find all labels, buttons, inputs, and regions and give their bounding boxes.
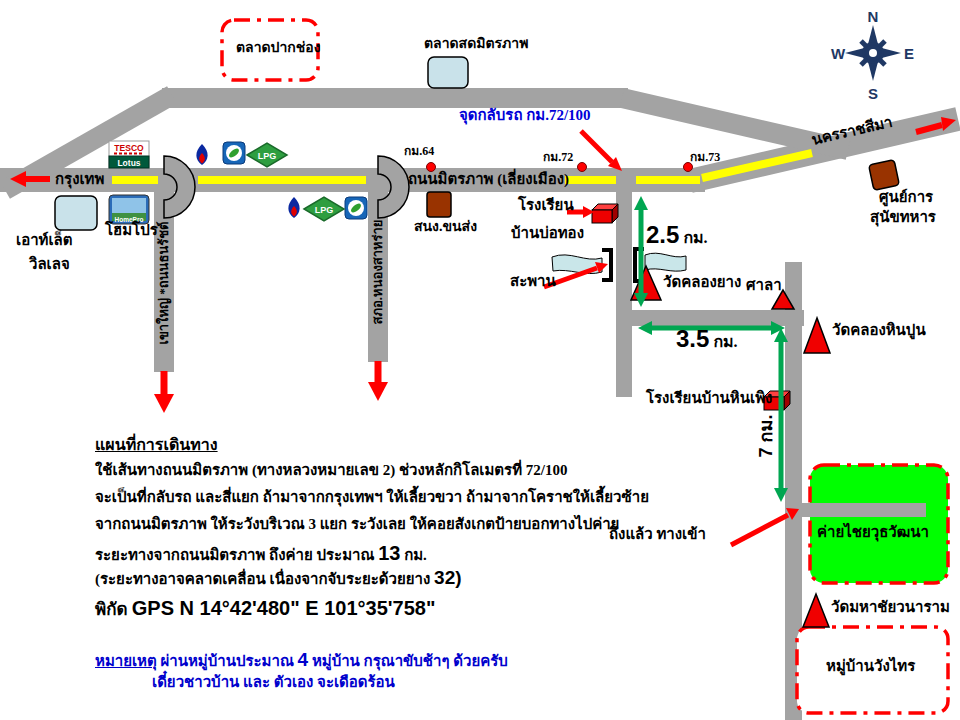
lotus-logo-text: Lotus	[117, 158, 140, 168]
mahachai-temple-label: วัดมหาชัยวนาราม	[831, 600, 950, 616]
arrived-entrance-label: ถึงแล้ว ทางเข้า	[609, 527, 706, 543]
dog-center-label-1: ศูนย์การ	[879, 190, 933, 206]
dog-center-building	[869, 160, 900, 191]
directions-line-3: จากถนนมิตรภาพ ให้ระวังบริเวณ 3 แยก ระวัง…	[95, 517, 619, 533]
nong-sarai-road-label: สภอ.หนองสาหร่าย	[371, 220, 385, 325]
gps-thai-label: พิกัด	[95, 600, 132, 619]
distance-2-5-unit: กม.	[683, 229, 707, 246]
directions-line-4: ระยะทางจากถนนมิตรภาพ ถึงค่าย ประมาณ 13 ก…	[95, 543, 427, 564]
disclaimer-value: 32)	[434, 567, 461, 588]
khlong-yang-temple-label: วัดคลองยาง	[663, 275, 741, 291]
distance-7km-label: 7 กม.	[757, 415, 776, 458]
outlet-village-building	[55, 196, 97, 230]
km73-label: กม.73	[690, 151, 720, 164]
note-village-count: 4	[298, 649, 309, 670]
pakchong-market-label: ตลาดปากช่อง	[236, 41, 321, 56]
transport-office-label: สนง.ขนส่ง	[414, 220, 477, 235]
directions-line-5: (ระยะทางอาจคลาดเคลื่อน เนื่องจากจับระยะด…	[95, 568, 462, 588]
nong-sarai-south-arrow	[368, 361, 388, 401]
thanarat-south-arrow	[154, 371, 174, 413]
camp-entrance-road	[800, 503, 926, 517]
km72-marker-dot	[578, 163, 587, 172]
distance-2-5km-label: 2.5 กม.	[646, 222, 708, 247]
note-label: หมายเหตุ	[95, 653, 157, 669]
bothong-school-label-1: โรงเรียน	[518, 198, 574, 214]
camp-access-road	[616, 192, 632, 397]
thanarat-road-label: เขาใหญ่ *ถนนธนรัชต์	[157, 221, 171, 344]
distance-total-text: ระยะทางจากถนนมิตรภาพ ถึงค่าย ประมาณ	[95, 547, 378, 563]
compass-east-label: E	[904, 45, 914, 62]
lpg-diamond-icon: LPG	[247, 143, 287, 167]
directions-heading: แผนที่การเดินทาง	[95, 437, 218, 454]
route-map: TESCO Lotus HomePro LPG LPG	[0, 0, 960, 720]
distance-2-5-value: 2.5	[646, 221, 679, 248]
distance-3-5km-label: 3.5 กม.	[676, 326, 738, 351]
svg-text:LPG: LPG	[315, 205, 334, 215]
temple-marker-khlong-hinpun	[804, 318, 830, 353]
bypass-road	[162, 88, 628, 108]
mitraphap-market-building	[428, 57, 468, 88]
compass-west-label: W	[831, 45, 846, 62]
compass-rose-icon: N S W E	[831, 8, 914, 102]
lpg-diamond-icon: LPG	[304, 197, 344, 221]
distance-3-5-value: 3.5	[676, 325, 709, 352]
compass-south-label: S	[868, 85, 878, 102]
gps-value: GPS N 14°42'480" E 101°35'758"	[132, 597, 436, 619]
distance-3-5-unit: กม.	[713, 333, 737, 350]
km72-label: กม.72	[543, 151, 573, 164]
tesco-logo-text: TESCO	[114, 143, 144, 153]
uturn-point-label: จุดกลับรถ กม.72/100	[459, 108, 591, 124]
caution-note-line-1: หมายเหตุ ผ่านหมู่บ้านประมาณ 4 หมู่บ้าน ก…	[95, 650, 508, 670]
homepro-sign: HomePro	[109, 195, 149, 224]
tesco-lotus-sign: TESCO Lotus	[109, 141, 149, 168]
compass-north-label: N	[868, 8, 879, 25]
camp-label: ค่ายไชยวุธวัฒนา	[817, 525, 929, 541]
highway-name-label: ถนนมิตรภาพ (เลี่ยงเมือง)	[408, 172, 569, 188]
note-text-a: ผ่านหมู่บ้านประมาณ	[157, 653, 298, 669]
dog-center-label-2: สุนัขทหาร	[870, 210, 936, 226]
distance-total-unit: กม.	[400, 547, 426, 563]
bridge-label: สะพาน	[510, 274, 556, 290]
gps-coordinates: พิกัด GPS N 14°42'480" E 101°35'758"	[95, 598, 435, 619]
hinphoeng-school-label: โรงเรียนบ้านหินเพิง	[646, 391, 772, 407]
uturn-pointer-arrow	[581, 131, 622, 171]
mitraphap-market-label: ตลาดสดมิตรภาพ	[424, 37, 528, 52]
outlet-village-label-2: วิลเลจ	[29, 257, 70, 273]
distance-total-value: 13	[378, 542, 400, 564]
wangsai-village-label: หมู่บ้านวังไทร	[826, 659, 915, 675]
svg-text:LPG: LPG	[258, 151, 277, 161]
caution-note-line-2: เดี๋ยวชาวบ้าน และ ตัวเอง จะเดือดร้อน	[152, 675, 395, 691]
directions-line-1: ใช้เส้นทางถนนมิตรภาพ (ทางหลวงหมายเลข 2) …	[95, 463, 567, 479]
directions-line-2: จะเป็นที่กลับรถ และสี่แยก ถ้ามาจากกรุงเท…	[95, 490, 649, 506]
sala-label: ศาลา	[746, 278, 782, 294]
temple-marker-mahachai	[803, 594, 829, 627]
khlong-hinpun-temple-label: วัดคลองหินปูน	[832, 323, 926, 339]
bangkok-label: กรุงเทพ	[55, 172, 104, 188]
disclaimer-text: (ระยะทางอาจคลาดเคลื่อน เนื่องจากจับระยะด…	[95, 571, 434, 587]
note-text-b: หมู่บ้าน กรุณาขับช้าๆ ด้วยครับ	[308, 653, 508, 669]
transport-office-building	[427, 192, 451, 217]
km64-label: กม.64	[404, 145, 434, 158]
bothong-school-label-2: บ้านบ่อทอง	[511, 226, 584, 242]
outlet-village-label-1: เอาท์เล็ต	[16, 233, 73, 249]
homepro-label: โฮมโปร	[105, 223, 158, 239]
river-east	[645, 253, 686, 271]
